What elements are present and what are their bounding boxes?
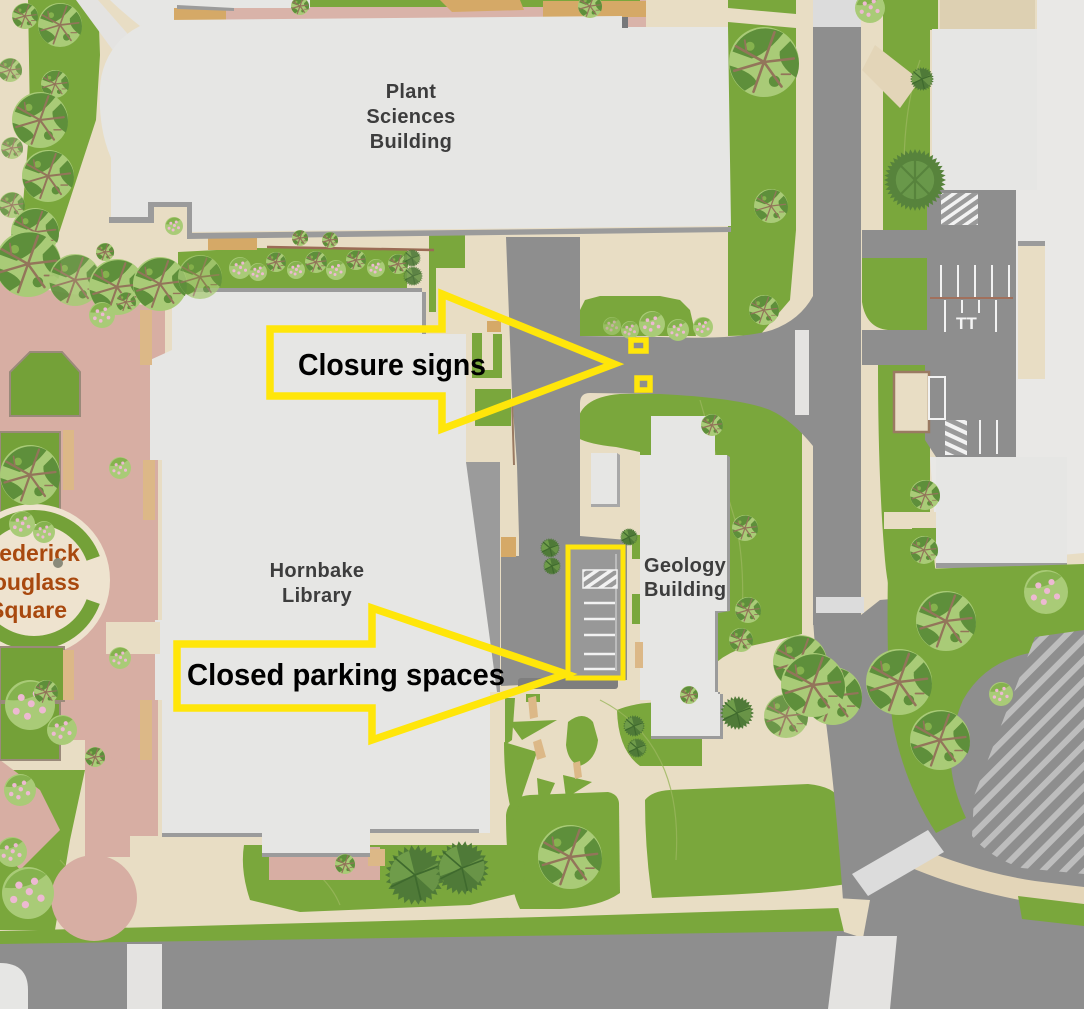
svg-text:Frederick: Frederick <box>0 540 80 566</box>
svg-text:TT: TT <box>956 314 977 333</box>
svg-text:Building: Building <box>644 579 726 601</box>
svg-text:Sciences: Sciences <box>366 106 455 128</box>
svg-text:Square: Square <box>0 597 67 623</box>
svg-text:Closure signs: Closure signs <box>298 347 486 382</box>
svg-text:Library: Library <box>282 585 352 607</box>
svg-text:Geology: Geology <box>644 555 727 577</box>
svg-text:Building: Building <box>370 131 452 153</box>
svg-text:Plant: Plant <box>386 81 436 103</box>
svg-text:Douglass: Douglass <box>0 569 80 595</box>
svg-text:Closed parking spaces: Closed parking spaces <box>187 657 505 692</box>
svg-text:Hornbake: Hornbake <box>270 560 365 582</box>
